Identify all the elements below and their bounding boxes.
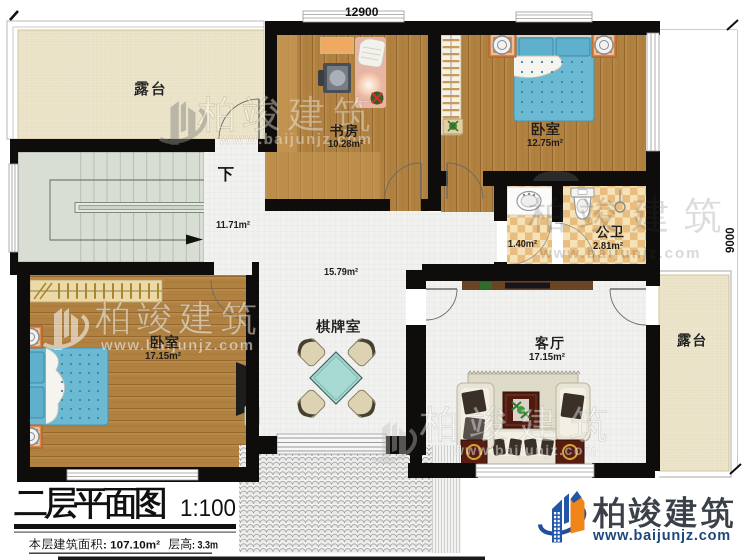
svg-text:9000: 9000 (725, 227, 737, 253)
svg-text:12.75m²: 12.75m² (527, 137, 563, 149)
svg-text:: 107.10m²: : 107.10m² (103, 540, 160, 552)
svg-text:10.28m²: 10.28m² (328, 138, 363, 150)
svg-text:www.baijunjz.com: www.baijunjz.com (592, 528, 731, 544)
svg-text:1:100: 1:100 (180, 495, 236, 522)
svg-text:11.71m²: 11.71m² (216, 219, 250, 231)
svg-text:17.15m²: 17.15m² (145, 350, 181, 362)
svg-text:www.baijunjz.com: www.baijunjz.com (452, 442, 598, 458)
svg-text:2.81m²: 2.81m² (593, 240, 623, 252)
svg-text:17.15m²: 17.15m² (529, 351, 565, 363)
svg-text:1.40m²: 1.40m² (508, 238, 537, 250)
svg-text:: 3.3m: : 3.3m (192, 540, 218, 552)
svg-text:15.79m²: 15.79m² (324, 266, 358, 278)
svg-text:12900: 12900 (345, 5, 379, 19)
